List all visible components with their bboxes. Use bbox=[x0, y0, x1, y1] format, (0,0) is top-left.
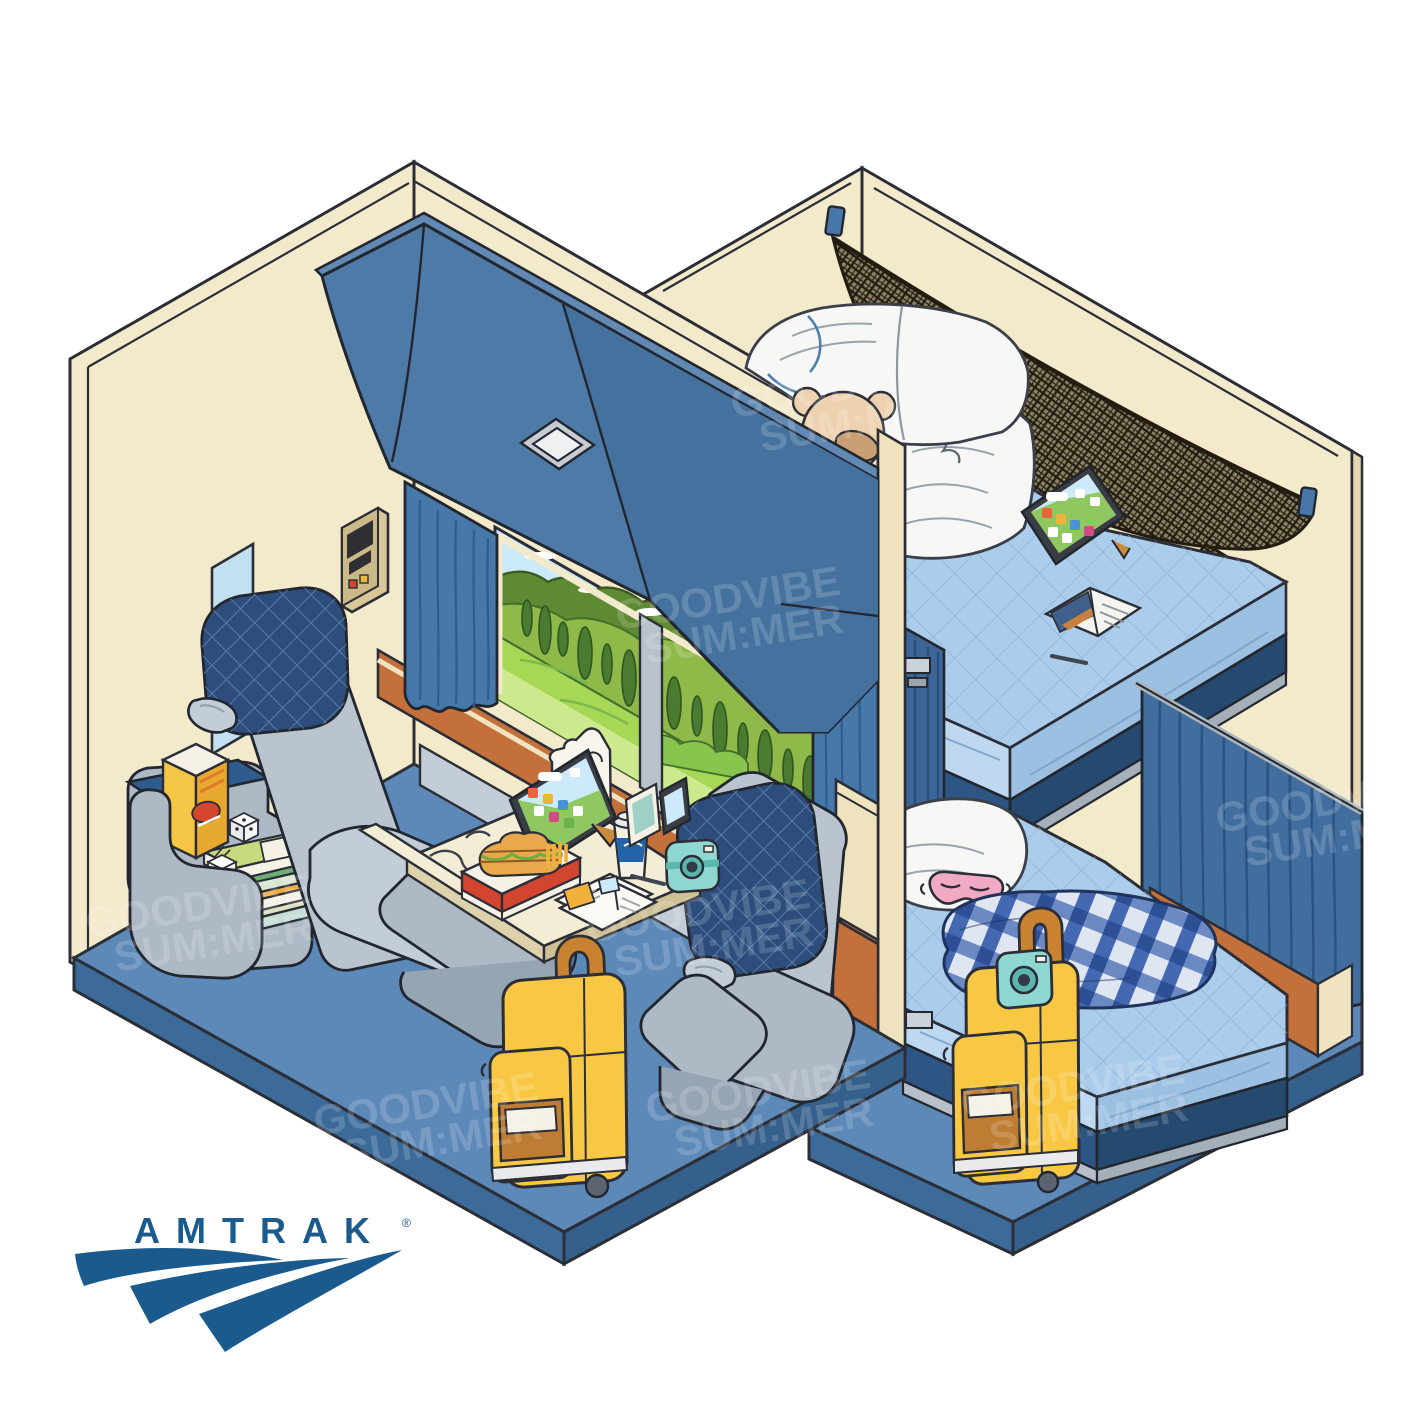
svg-text:AMTRAK: AMTRAK bbox=[134, 1210, 386, 1251]
svg-text:®: ® bbox=[402, 1216, 411, 1230]
